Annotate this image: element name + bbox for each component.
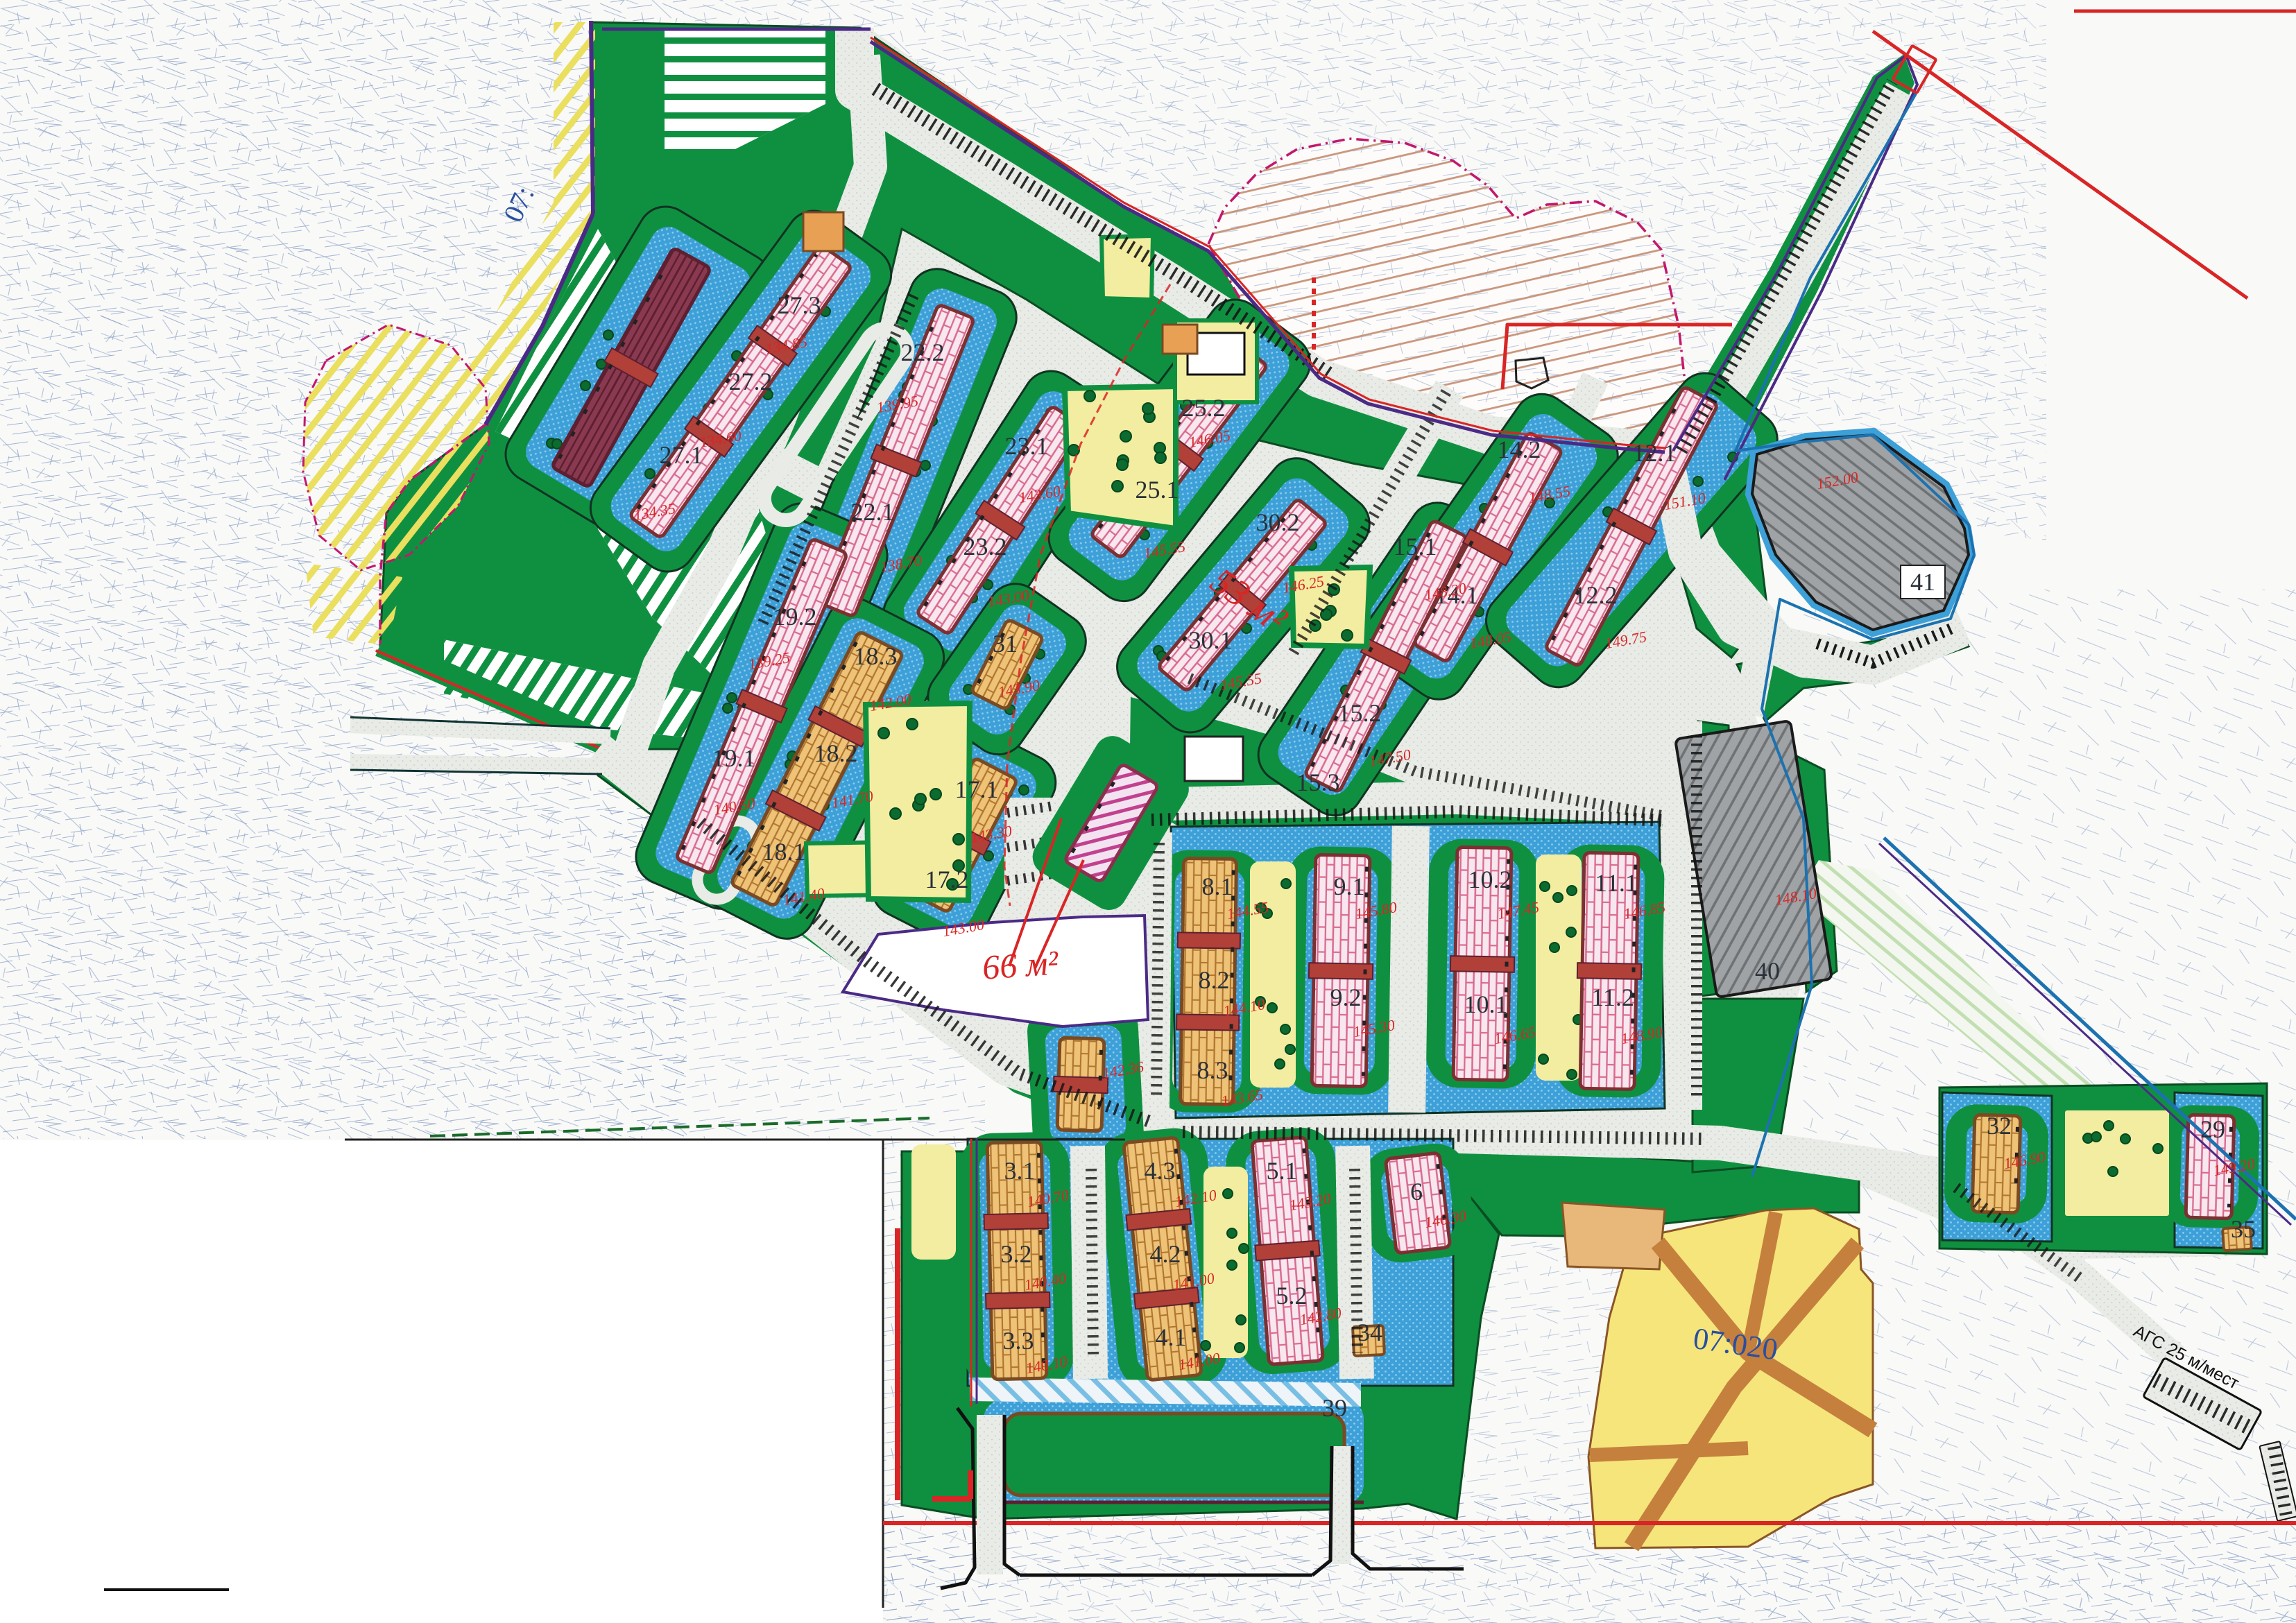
svg-text:10.1: 10.1 [1464, 990, 1508, 1018]
svg-text:14.2: 14.2 [1498, 436, 1541, 463]
svg-text:8.1: 8.1 [1202, 873, 1233, 900]
svg-text:23.1: 23.1 [1005, 432, 1049, 460]
svg-text:18.3: 18.3 [854, 642, 898, 670]
svg-text:15.1: 15.1 [1394, 533, 1437, 560]
svg-text:39: 39 [1322, 1394, 1347, 1422]
svg-text:4.2: 4.2 [1150, 1240, 1181, 1268]
svg-text:41: 41 [1910, 568, 1935, 596]
svg-text:15.2: 15.2 [1338, 699, 1382, 727]
svg-text:6: 6 [1410, 1178, 1423, 1205]
svg-text:4.1: 4.1 [1156, 1323, 1187, 1351]
svg-text:27.3: 27.3 [778, 291, 821, 319]
svg-text:11.2: 11.2 [1591, 984, 1634, 1011]
svg-text:5.2: 5.2 [1276, 1282, 1308, 1309]
svg-text:9.1: 9.1 [1334, 873, 1365, 900]
svg-text:10.2: 10.2 [1468, 866, 1512, 893]
svg-text:34: 34 [1357, 1319, 1382, 1346]
svg-text:12.1: 12.1 [1633, 439, 1677, 467]
svg-text:8.3: 8.3 [1197, 1056, 1228, 1084]
svg-text:22.2: 22.2 [901, 338, 945, 366]
svg-text:17.1: 17.1 [955, 775, 999, 803]
svg-text:29: 29 [2200, 1115, 2225, 1143]
svg-text:8.2: 8.2 [1199, 966, 1230, 994]
svg-text:22.1: 22.1 [851, 498, 895, 526]
svg-text:30.2: 30.2 [1256, 508, 1300, 536]
svg-text:31: 31 [993, 630, 1018, 658]
svg-text:27.1: 27.1 [660, 441, 703, 469]
svg-text:19.2: 19.2 [773, 603, 817, 630]
svg-text:3.2: 3.2 [1001, 1240, 1032, 1268]
svg-text:30.1: 30.1 [1189, 626, 1233, 654]
svg-text:4.3: 4.3 [1145, 1157, 1176, 1185]
svg-text:12.2: 12.2 [1574, 581, 1618, 609]
svg-text:3.1: 3.1 [1004, 1157, 1036, 1185]
svg-text:66 м²: 66 м² [981, 943, 1060, 987]
svg-text:25.2: 25.2 [1182, 394, 1226, 422]
svg-text:17.2: 17.2 [925, 866, 969, 893]
svg-text:9.2: 9.2 [1330, 984, 1362, 1011]
svg-text:11.1: 11.1 [1595, 869, 1638, 897]
svg-text:3.3: 3.3 [1003, 1327, 1034, 1355]
svg-text:18.1: 18.1 [762, 838, 806, 866]
svg-text:23.2: 23.2 [963, 533, 1007, 560]
svg-text:15.3: 15.3 [1296, 768, 1340, 796]
svg-text:40: 40 [1755, 957, 1780, 985]
svg-text:18.2: 18.2 [814, 739, 858, 767]
svg-text:35: 35 [2231, 1215, 2256, 1243]
svg-text:5.1: 5.1 [1267, 1157, 1298, 1185]
svg-text:32: 32 [1987, 1112, 2012, 1140]
svg-text:27.2: 27.2 [729, 368, 773, 395]
svg-text:19.1: 19.1 [712, 744, 756, 772]
svg-text:25.1: 25.1 [1136, 476, 1179, 504]
